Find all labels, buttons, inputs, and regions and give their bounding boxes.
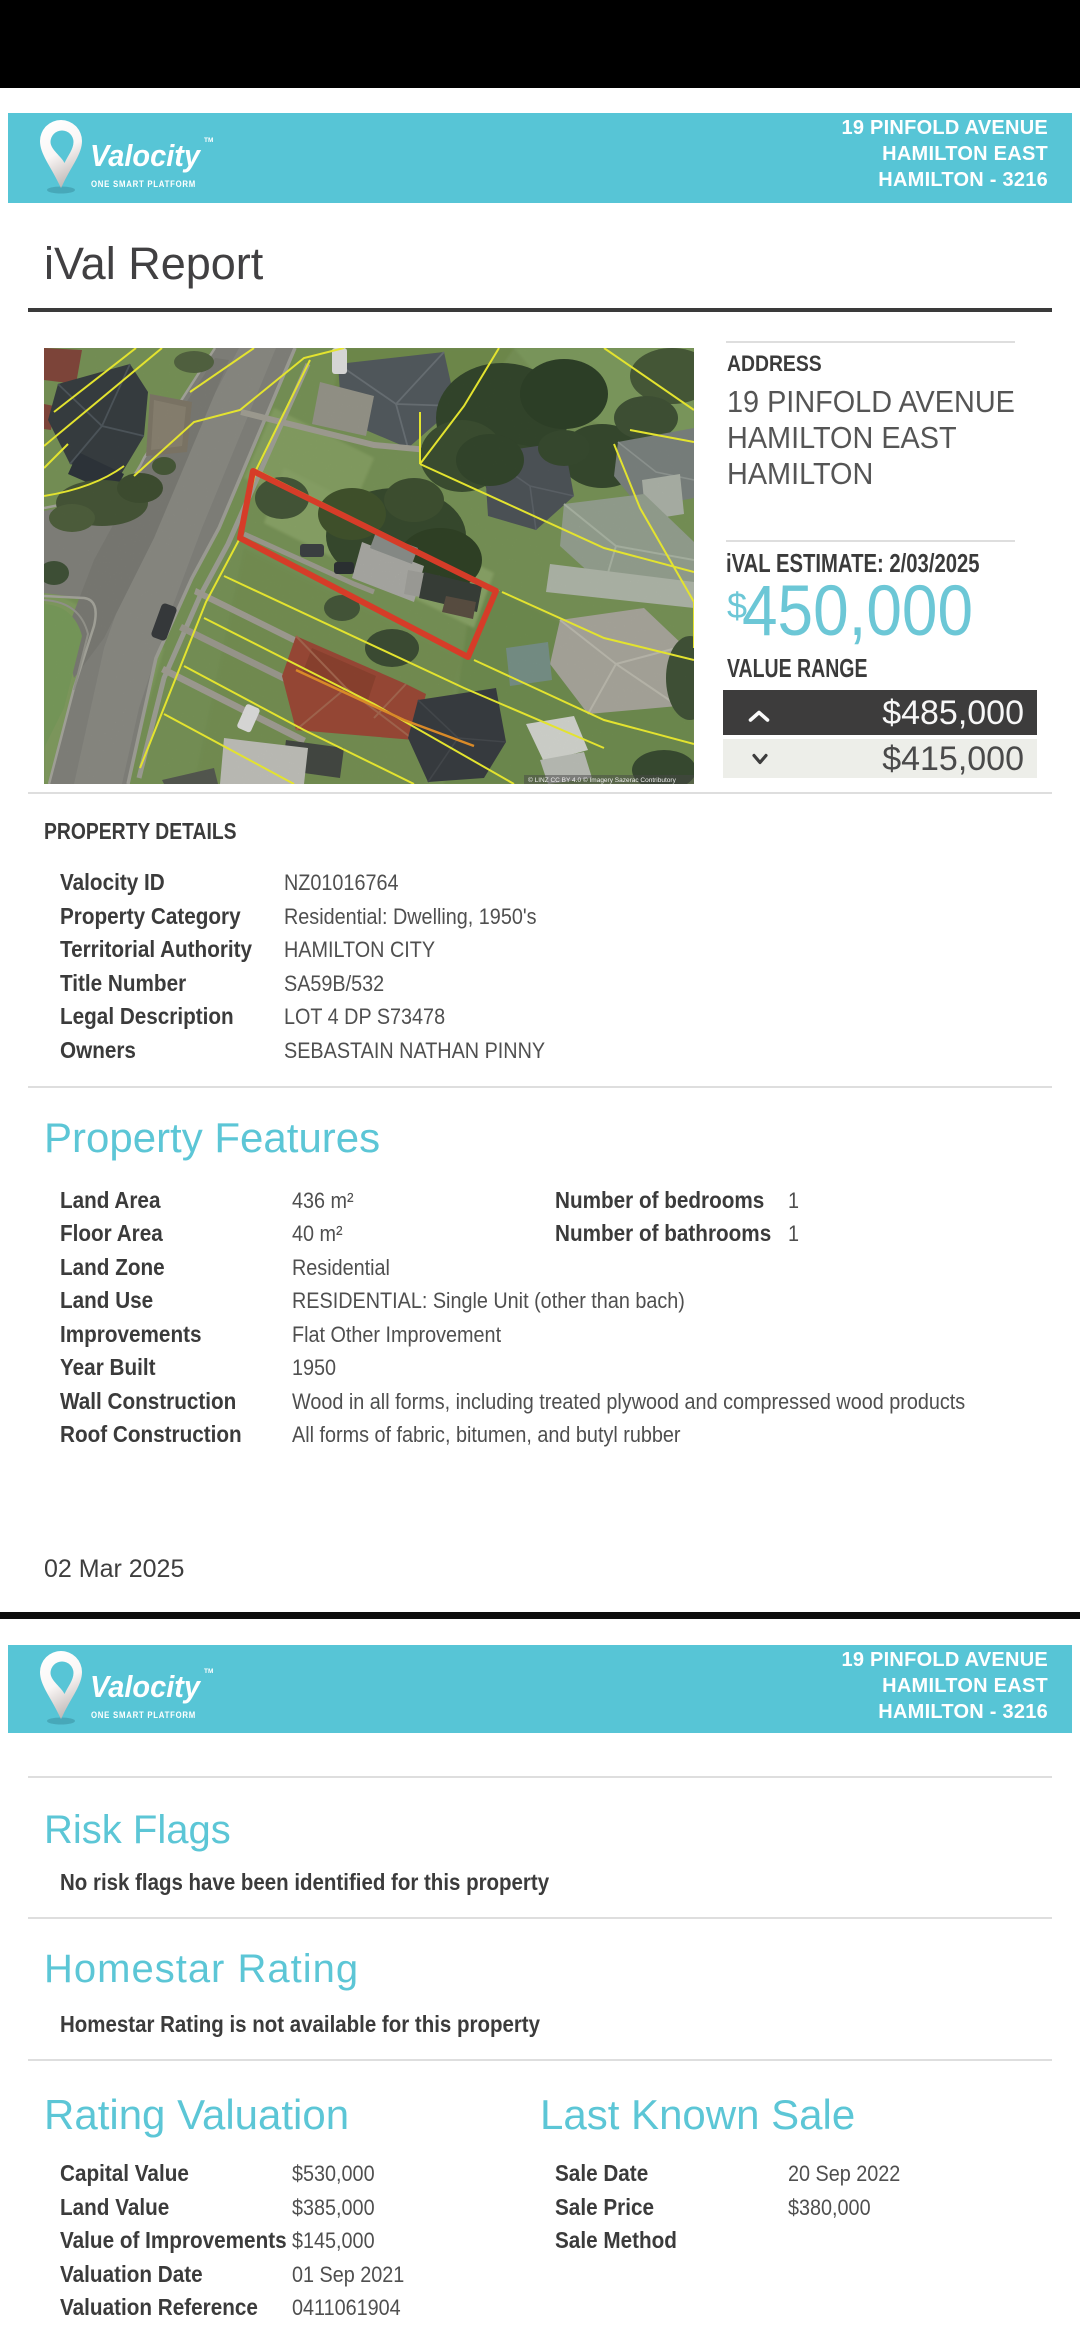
svg-text:Valocity: Valocity xyxy=(90,138,202,173)
svg-text:TM: TM xyxy=(204,137,213,144)
svg-text:Valocity: Valocity xyxy=(90,1669,202,1704)
svg-text:© LINZ CC BY 4.0 © Imagery Saz: © LINZ CC BY 4.0 © Imagery Sazerac Contr… xyxy=(528,776,677,784)
svg-text:ONE SMART PLATFORM: ONE SMART PLATFORM xyxy=(91,1710,196,1721)
svg-text:TM: TM xyxy=(204,1668,213,1675)
svg-text:ONE SMART PLATFORM: ONE SMART PLATFORM xyxy=(91,179,196,190)
